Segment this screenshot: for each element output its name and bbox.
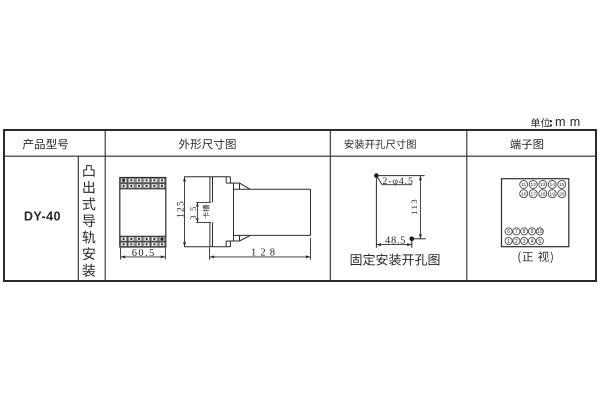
svg-text:9: 9 [531,229,534,235]
svg-text:17: 17 [531,191,537,197]
svg-text:18: 18 [540,191,546,197]
svg-text:113: 113 [409,199,419,215]
svg-text:3: 3 [523,239,526,245]
svg-text:12: 12 [531,182,537,188]
svg-text:128: 128 [251,248,275,259]
svg-text:4: 4 [531,239,534,245]
svg-text:6: 6 [507,229,510,235]
svg-text:7: 7 [515,229,518,235]
svg-text:16: 16 [521,191,527,197]
svg-text:2-φ4.5: 2-φ4.5 [382,176,413,187]
svg-text:14: 14 [550,182,556,188]
svg-text:60.5: 60.5 [132,248,154,259]
svg-text:2: 2 [515,239,518,245]
svg-text:1: 1 [507,239,510,245]
svg-text:5: 5 [538,239,541,245]
svg-text:10: 10 [537,229,543,235]
svg-text:8: 8 [523,229,526,235]
svg-text:20: 20 [559,191,565,197]
svg-text:11: 11 [521,182,526,188]
svg-text:48.5: 48.5 [385,236,405,247]
svg-text:15: 15 [559,182,565,188]
svg-text:13: 13 [540,182,546,188]
svg-text:125: 125 [177,201,187,218]
svg-text:mm: mm [555,115,584,129]
svg-text:DY-40: DY-40 [24,210,61,224]
svg-text:35: 35 [188,207,198,220]
svg-text:19: 19 [550,191,556,197]
